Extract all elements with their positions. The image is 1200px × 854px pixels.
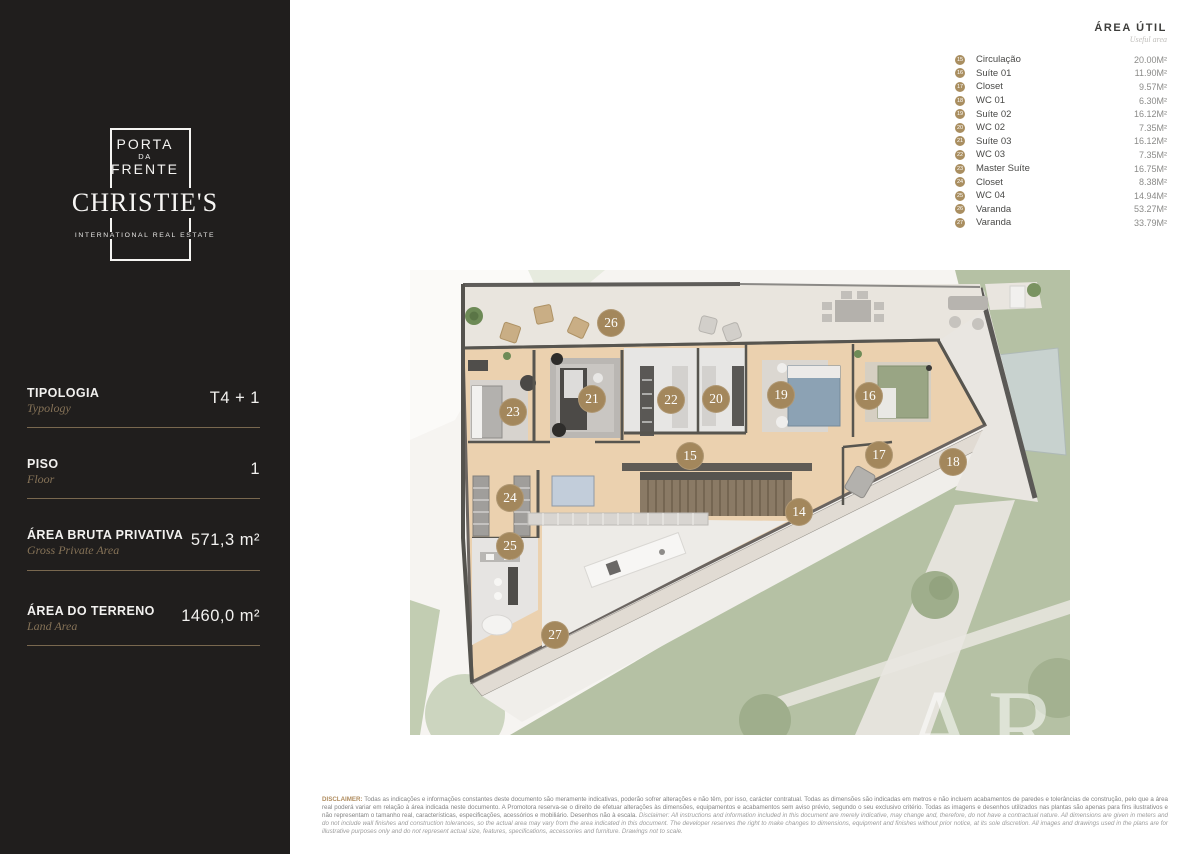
armchair xyxy=(972,318,984,330)
partition xyxy=(508,567,518,605)
room-marker-25: 25 xyxy=(496,532,524,560)
legend-badge: 16 xyxy=(955,68,965,78)
legend-badge: 18 xyxy=(955,96,965,106)
dresser xyxy=(468,360,488,371)
divider xyxy=(27,570,260,571)
toilet xyxy=(494,578,502,586)
sidebar: PORTA DA FRENTE CHRISTIE'S INTERNATIONAL… xyxy=(0,0,290,854)
logo-porta-da-frente: PORTA DA FRENTE xyxy=(0,136,290,177)
legend-list: 15Circulação20.00M²16Suíte 0111.90M²17Cl… xyxy=(955,53,1167,230)
info-value: 1460,0 m² xyxy=(181,607,260,626)
room-marker-18: 18 xyxy=(939,448,967,476)
legend-subtitle: Useful area xyxy=(955,35,1167,44)
room-name: Circulação xyxy=(976,54,1021,65)
room-marker-24: 24 xyxy=(496,484,524,512)
legend-item: 22WC 037.35M² xyxy=(955,148,1167,162)
chair xyxy=(822,302,832,310)
room-marker-21: 21 xyxy=(578,385,606,413)
legend-badge: 20 xyxy=(955,123,965,133)
plant-center xyxy=(470,312,479,321)
room-marker-27: 27 xyxy=(541,621,569,649)
divider xyxy=(27,498,260,499)
chair xyxy=(822,314,832,322)
room-name: Master Suíte xyxy=(976,163,1030,174)
room-marker-20: 20 xyxy=(702,385,730,413)
side-table xyxy=(777,363,787,373)
room-marker-22: 22 xyxy=(657,386,685,414)
room-area: 7.35M² xyxy=(1139,150,1167,160)
plant xyxy=(854,350,862,358)
room-name: Suíte 01 xyxy=(976,68,1011,79)
watermark-text: ARE xyxy=(902,668,1070,735)
cabinet xyxy=(1010,286,1025,308)
room-area: 33.79M² xyxy=(1134,218,1167,228)
shelf-unit xyxy=(640,366,654,436)
stair-wall xyxy=(640,472,792,480)
legend-item: 16Suíte 0111.90M² xyxy=(955,67,1167,81)
room-name: Closet xyxy=(976,177,1003,188)
bed-pillows xyxy=(788,366,840,378)
room-area: 6.30M² xyxy=(1139,96,1167,106)
legend-badge: 24 xyxy=(955,177,965,187)
bidet xyxy=(494,592,502,600)
room-marker-23: 23 xyxy=(499,398,527,426)
room-area: 9.57M² xyxy=(1139,82,1167,92)
floor-plan: ARE 1415161718192021222324252627 xyxy=(410,270,1070,735)
legend-item: 21Suíte 0316.12M² xyxy=(955,135,1167,149)
lamp xyxy=(926,365,932,371)
chair xyxy=(874,302,884,310)
room-marker-16: 16 xyxy=(855,382,883,410)
info-row: ÁREA BRUTA PRIVATIVAGross Private Area57… xyxy=(27,528,260,558)
legend-item: 20WC 027.35M² xyxy=(955,121,1167,135)
legend-title: ÁREA ÚTIL xyxy=(955,22,1167,34)
shelf-unit xyxy=(732,366,744,426)
chair xyxy=(841,291,852,299)
brand-tagline: INTERNATIONAL REAL ESTATE xyxy=(0,224,290,242)
logo-line3: FRENTE xyxy=(0,161,290,177)
room-name: WC 01 xyxy=(976,95,1005,106)
room-marker-19: 19 xyxy=(767,381,795,409)
legend-badge: 25 xyxy=(955,191,965,201)
chair xyxy=(593,373,603,383)
room-name: Varanda xyxy=(976,217,1011,228)
info-sublabel: Floor xyxy=(27,472,260,487)
legend-badge: 17 xyxy=(955,82,965,92)
top-wall xyxy=(463,284,740,285)
room-area: 53.27M² xyxy=(1134,204,1167,214)
brand-logo: PORTA DA FRENTE CHRISTIE'S INTERNATIONAL… xyxy=(0,0,290,300)
stairs xyxy=(640,480,792,516)
legend-badge: 23 xyxy=(955,164,965,174)
armchair xyxy=(698,315,717,334)
divider xyxy=(27,427,260,428)
legend-badge: 22 xyxy=(955,150,965,160)
room-area: 14.94M² xyxy=(1134,191,1167,201)
room-area: 20.00M² xyxy=(1134,55,1167,65)
info-row: ÁREA DO TERRENOLand Area1460,0 m² xyxy=(27,604,260,634)
room-area: 11.90M² xyxy=(1135,68,1167,78)
room-name: Suíte 03 xyxy=(976,136,1011,147)
area-legend: ÁREA ÚTIL Useful area 15Circulação20.00M… xyxy=(955,22,1167,230)
info-value: 1 xyxy=(250,460,260,479)
side-table xyxy=(776,416,788,428)
disclaimer: DISCLAIMER: Todas as indicações e inform… xyxy=(322,796,1168,836)
plant xyxy=(503,352,511,360)
chair xyxy=(874,314,884,322)
sink-fixture xyxy=(659,549,665,555)
legend-item: 23Master Suíte16.75M² xyxy=(955,162,1167,176)
room-area: 16.12M² xyxy=(1134,109,1167,119)
legend-item: 19Suíte 0216.12M² xyxy=(955,107,1167,121)
closet-unit xyxy=(473,476,489,536)
lounge-chair xyxy=(534,304,554,324)
legend-badge: 19 xyxy=(955,109,965,119)
chair xyxy=(857,291,868,299)
logo-line2: DA xyxy=(0,152,290,161)
info-label: PISO xyxy=(27,457,260,472)
logo-line1: PORTA xyxy=(0,136,290,152)
room-marker-26: 26 xyxy=(597,309,625,337)
info-value: T4 + 1 xyxy=(210,389,260,408)
pouf xyxy=(552,423,566,437)
legend-item: 17Closet9.57M² xyxy=(955,80,1167,94)
corridor-runner xyxy=(622,463,812,471)
pouf xyxy=(551,353,563,365)
skylight xyxy=(552,476,594,506)
room-name: WC 03 xyxy=(976,149,1005,160)
legend-badge: 15 xyxy=(955,55,965,65)
room-name: Varanda xyxy=(976,204,1011,215)
legend-badge: 27 xyxy=(955,218,965,228)
legend-badge: 21 xyxy=(955,136,965,146)
room-name: Suíte 02 xyxy=(976,109,1011,120)
legend-item: 26Varanda53.27M² xyxy=(955,203,1167,217)
room-area: 16.75M² xyxy=(1134,164,1167,174)
outdoor-sofa xyxy=(948,296,988,310)
room-marker-14: 14 xyxy=(785,498,813,526)
armchair xyxy=(949,316,961,328)
bathtub xyxy=(482,615,512,635)
divider xyxy=(27,645,260,646)
sink xyxy=(486,554,494,560)
room-name: Closet xyxy=(976,81,1003,92)
info-value: 571,3 m² xyxy=(191,531,260,550)
legend-item: 15Circulação20.00M² xyxy=(955,53,1167,67)
disclaimer-prefix: DISCLAIMER: xyxy=(322,796,363,803)
brand-name: CHRISTIE'S xyxy=(0,188,290,218)
legend-badge: 26 xyxy=(955,204,965,214)
legend-item: 18WC 016.30M² xyxy=(955,94,1167,108)
legend-item: 25WC 0414.94M² xyxy=(955,189,1167,203)
room-area: 16.12M² xyxy=(1134,136,1167,146)
room-area: 8.38M² xyxy=(1139,177,1167,187)
legend-item: 27Varanda33.79M² xyxy=(955,216,1167,230)
info-row: TIPOLOGIATypologyT4 + 1 xyxy=(27,386,260,416)
room-area: 7.35M² xyxy=(1139,123,1167,133)
legend-item: 24Closet8.38M² xyxy=(955,175,1167,189)
bed-pillows xyxy=(472,386,482,438)
room-name: WC 02 xyxy=(976,122,1005,133)
dining-table xyxy=(835,300,871,322)
info-row: PISOFloor1 xyxy=(27,457,260,487)
room-marker-15: 15 xyxy=(676,442,704,470)
room-name: WC 04 xyxy=(976,190,1005,201)
plant xyxy=(1027,283,1041,297)
tree-crown xyxy=(929,576,953,600)
room-marker-17: 17 xyxy=(865,441,893,469)
